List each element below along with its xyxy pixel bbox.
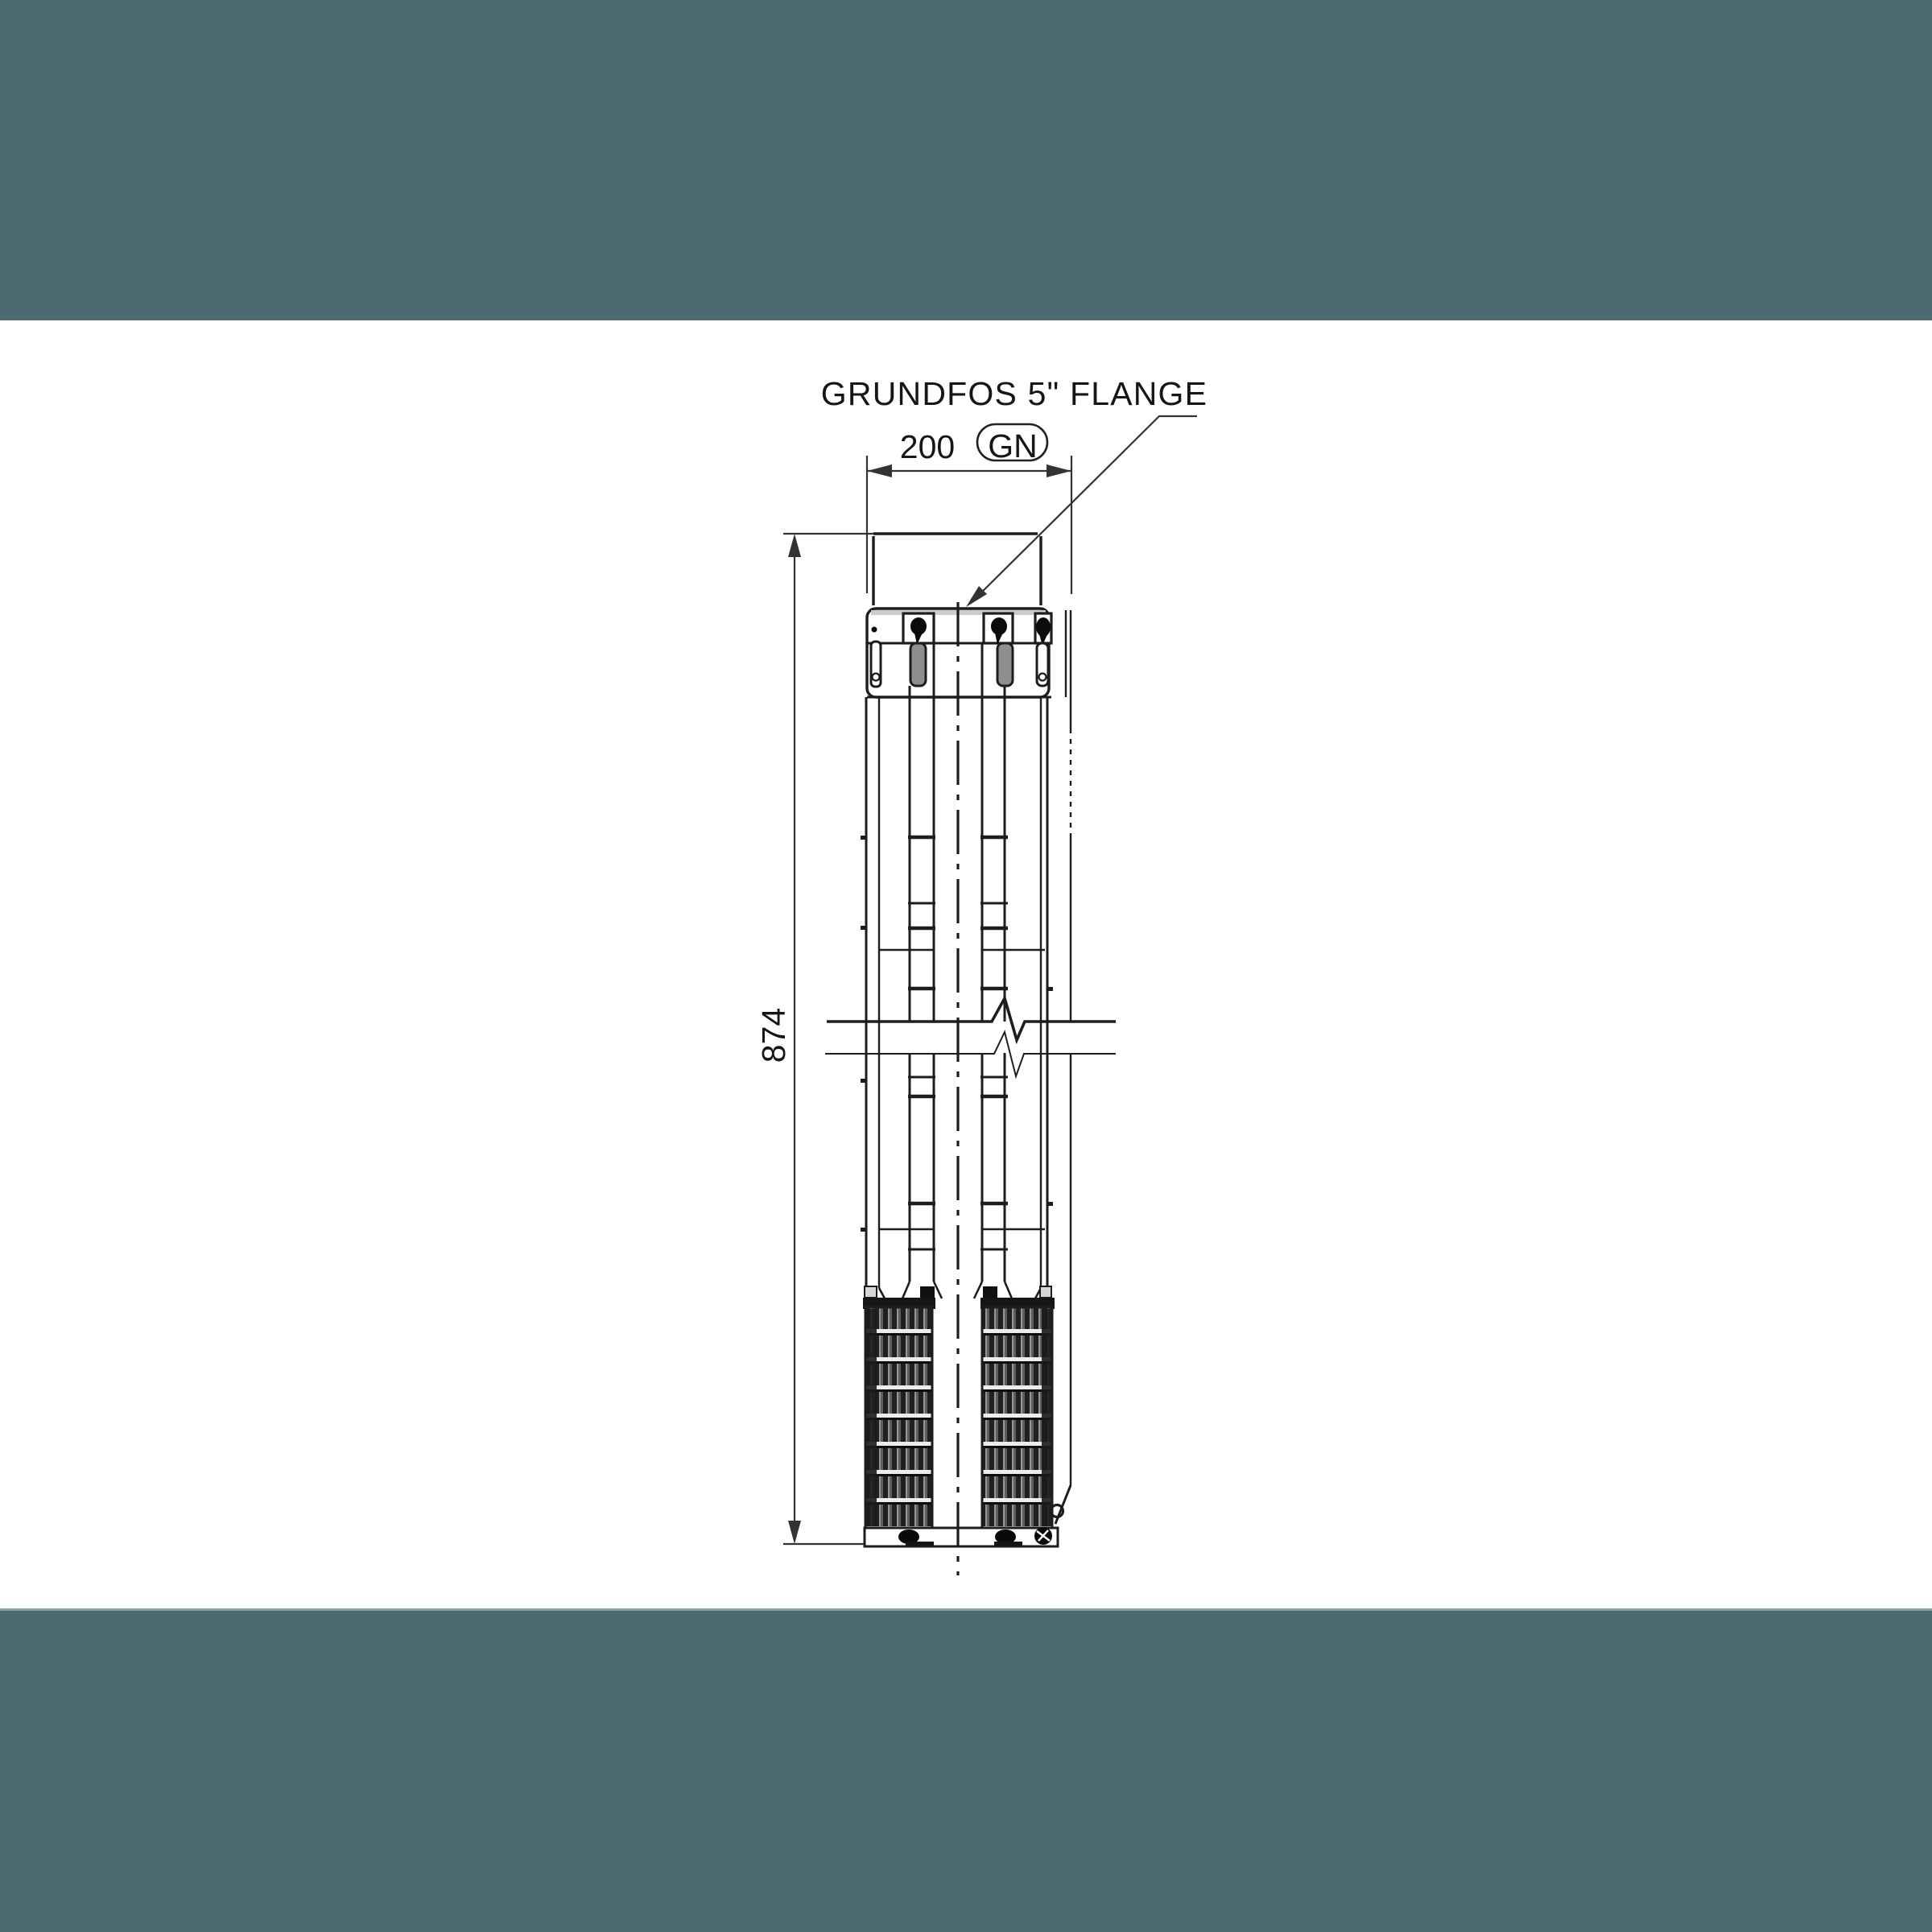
bottom-plate <box>865 1528 1058 1546</box>
motor-top-block-left <box>920 1286 935 1298</box>
motor-top-block-right <box>983 1286 997 1298</box>
width-dim-label: 200 <box>900 428 955 465</box>
bolt-icon <box>1036 617 1051 637</box>
height-dim-label: 874 <box>755 1008 792 1063</box>
strap-slot-right <box>997 643 1013 686</box>
flange-label: GRUNDFOS 5" FLANGE <box>821 375 1207 412</box>
bottom-band <box>0 1611 1932 1932</box>
gn-badge-label: GN <box>988 427 1038 464</box>
top-band <box>0 0 1932 320</box>
bolt-icon <box>910 617 927 635</box>
motor-screen-right <box>982 1307 1052 1528</box>
flange-pin-hole <box>872 627 877 633</box>
bolt-icon <box>991 617 1007 635</box>
motor-screen-shade-left <box>866 1309 877 1526</box>
motor-top-lug-right <box>1040 1286 1051 1298</box>
bottom-band-edge <box>0 1608 1932 1611</box>
cable-clamp-right-hole <box>1039 674 1046 681</box>
motor-screen-shade-right <box>1042 1309 1051 1526</box>
motor-top-lug-left <box>865 1286 877 1298</box>
cable-clamp-left-hole <box>873 674 880 681</box>
pump-drawing: GRUNDFOS 5" FLANGE 200 GN 874 <box>0 0 1932 1932</box>
strap-slot-left <box>910 643 926 686</box>
